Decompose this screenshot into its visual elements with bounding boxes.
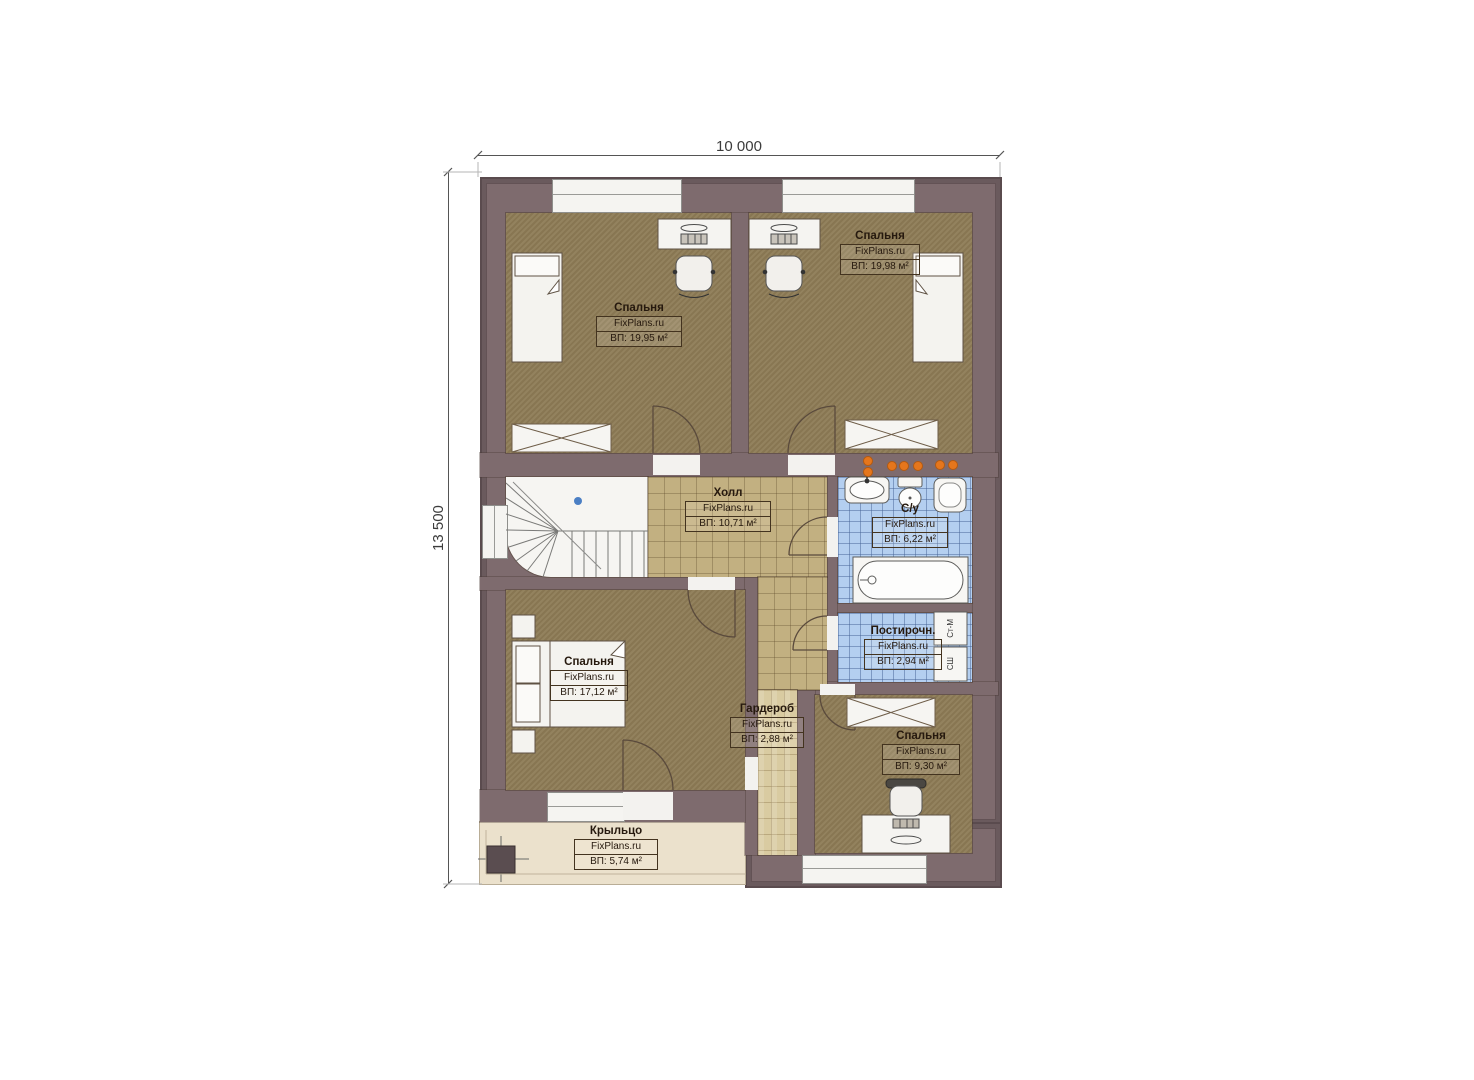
brand-watermark: FixPlans.ru [731,718,803,733]
dimension-height-label: 13 500 [430,478,447,578]
room-label-wardrobe: Гардероб FixPlans.ru ВП: 2,88 м² [730,703,804,748]
room-name: Спальня [550,656,628,669]
door-threshold-wardrobe [745,757,758,790]
room-label-bathroom: С/у FixPlans.ru ВП: 6,22 м² [872,503,948,548]
dimension-width-label: 10 000 [478,138,1000,155]
room-area: ВП: 5,74 м² [575,855,657,869]
floor-staircase [506,477,648,577]
floor-plan-canvas: 10 000 13 500 Ст-М СШ [0,0,1474,1080]
brand-watermark: FixPlans.ru [883,745,959,760]
brand-watermark: FixPlans.ru [841,245,919,260]
room-name: Холл [685,487,771,500]
room-label-porch: Крыльцо FixPlans.ru ВП: 5,74 м² [574,825,658,870]
window-top-right [782,179,915,213]
window-bedroom-br [802,855,927,884]
brand-watermark: FixPlans.ru [597,317,681,332]
floor-hall-corridor [758,577,827,690]
room-name: С/у [872,503,948,516]
window-stairs-left [482,505,508,559]
partition-bath-left [827,477,838,688]
room-area: ВП: 2,94 м² [865,655,941,669]
brand-watermark: FixPlans.ru [686,502,770,517]
door-threshold-bedroom-br [820,684,855,695]
door-threshold-bedroom-tl [653,455,700,475]
window-top-left [552,179,682,213]
dimension-line-left [448,172,449,884]
room-area: ВП: 10,71 м² [686,517,770,531]
room-label-bedroom-br: Спальня FixPlans.ru ВП: 9,30 м² [882,730,960,775]
room-name: Постирочн. [864,625,942,638]
room-name: Гардероб [730,703,804,716]
room-label-bedroom-tl: Спальня FixPlans.ru ВП: 19,95 м² [596,302,682,347]
washing-machine-text: Ст-М [946,619,955,638]
room-name: Спальня [596,302,682,315]
room-label-bedroom-tr: Спальня FixPlans.ru ВП: 19,98 м² [840,230,920,275]
room-label-hall: Холл FixPlans.ru ВП: 10,71 м² [685,487,771,532]
partition-hall-top [480,453,998,477]
room-area: ВП: 9,30 м² [883,760,959,774]
window-bedroom-bl [547,792,625,822]
room-area: ВП: 19,95 м² [597,332,681,346]
door-threshold-laundry [827,616,838,650]
room-area: ВП: 19,98 м² [841,260,919,274]
brand-watermark: FixPlans.ru [873,518,947,533]
brand-watermark: FixPlans.ru [865,640,941,655]
partition-bedrooms-top [731,213,749,453]
room-name: Крыльцо [574,825,658,838]
room-area: ВП: 6,22 м² [873,533,947,547]
room-area: ВП: 2,88 м² [731,733,803,747]
room-name: Спальня [840,230,920,243]
door-threshold-bathroom [827,517,838,557]
door-threshold-bedroom-tr [788,455,835,475]
room-area: ВП: 17,12 м² [551,686,627,700]
door-threshold-porch [623,792,673,820]
room-label-laundry: Постирочн. FixPlans.ru ВП: 2,94 м² [864,625,942,670]
room-name: Спальня [882,730,960,743]
dryer-text: СШ [946,657,955,670]
door-threshold-bedroom-bl [688,577,735,590]
room-label-bedroom-bl: Спальня FixPlans.ru ВП: 17,12 м² [550,656,628,701]
dimension-line-top [478,155,1000,156]
brand-watermark: FixPlans.ru [575,840,657,855]
brand-watermark: FixPlans.ru [551,671,627,686]
